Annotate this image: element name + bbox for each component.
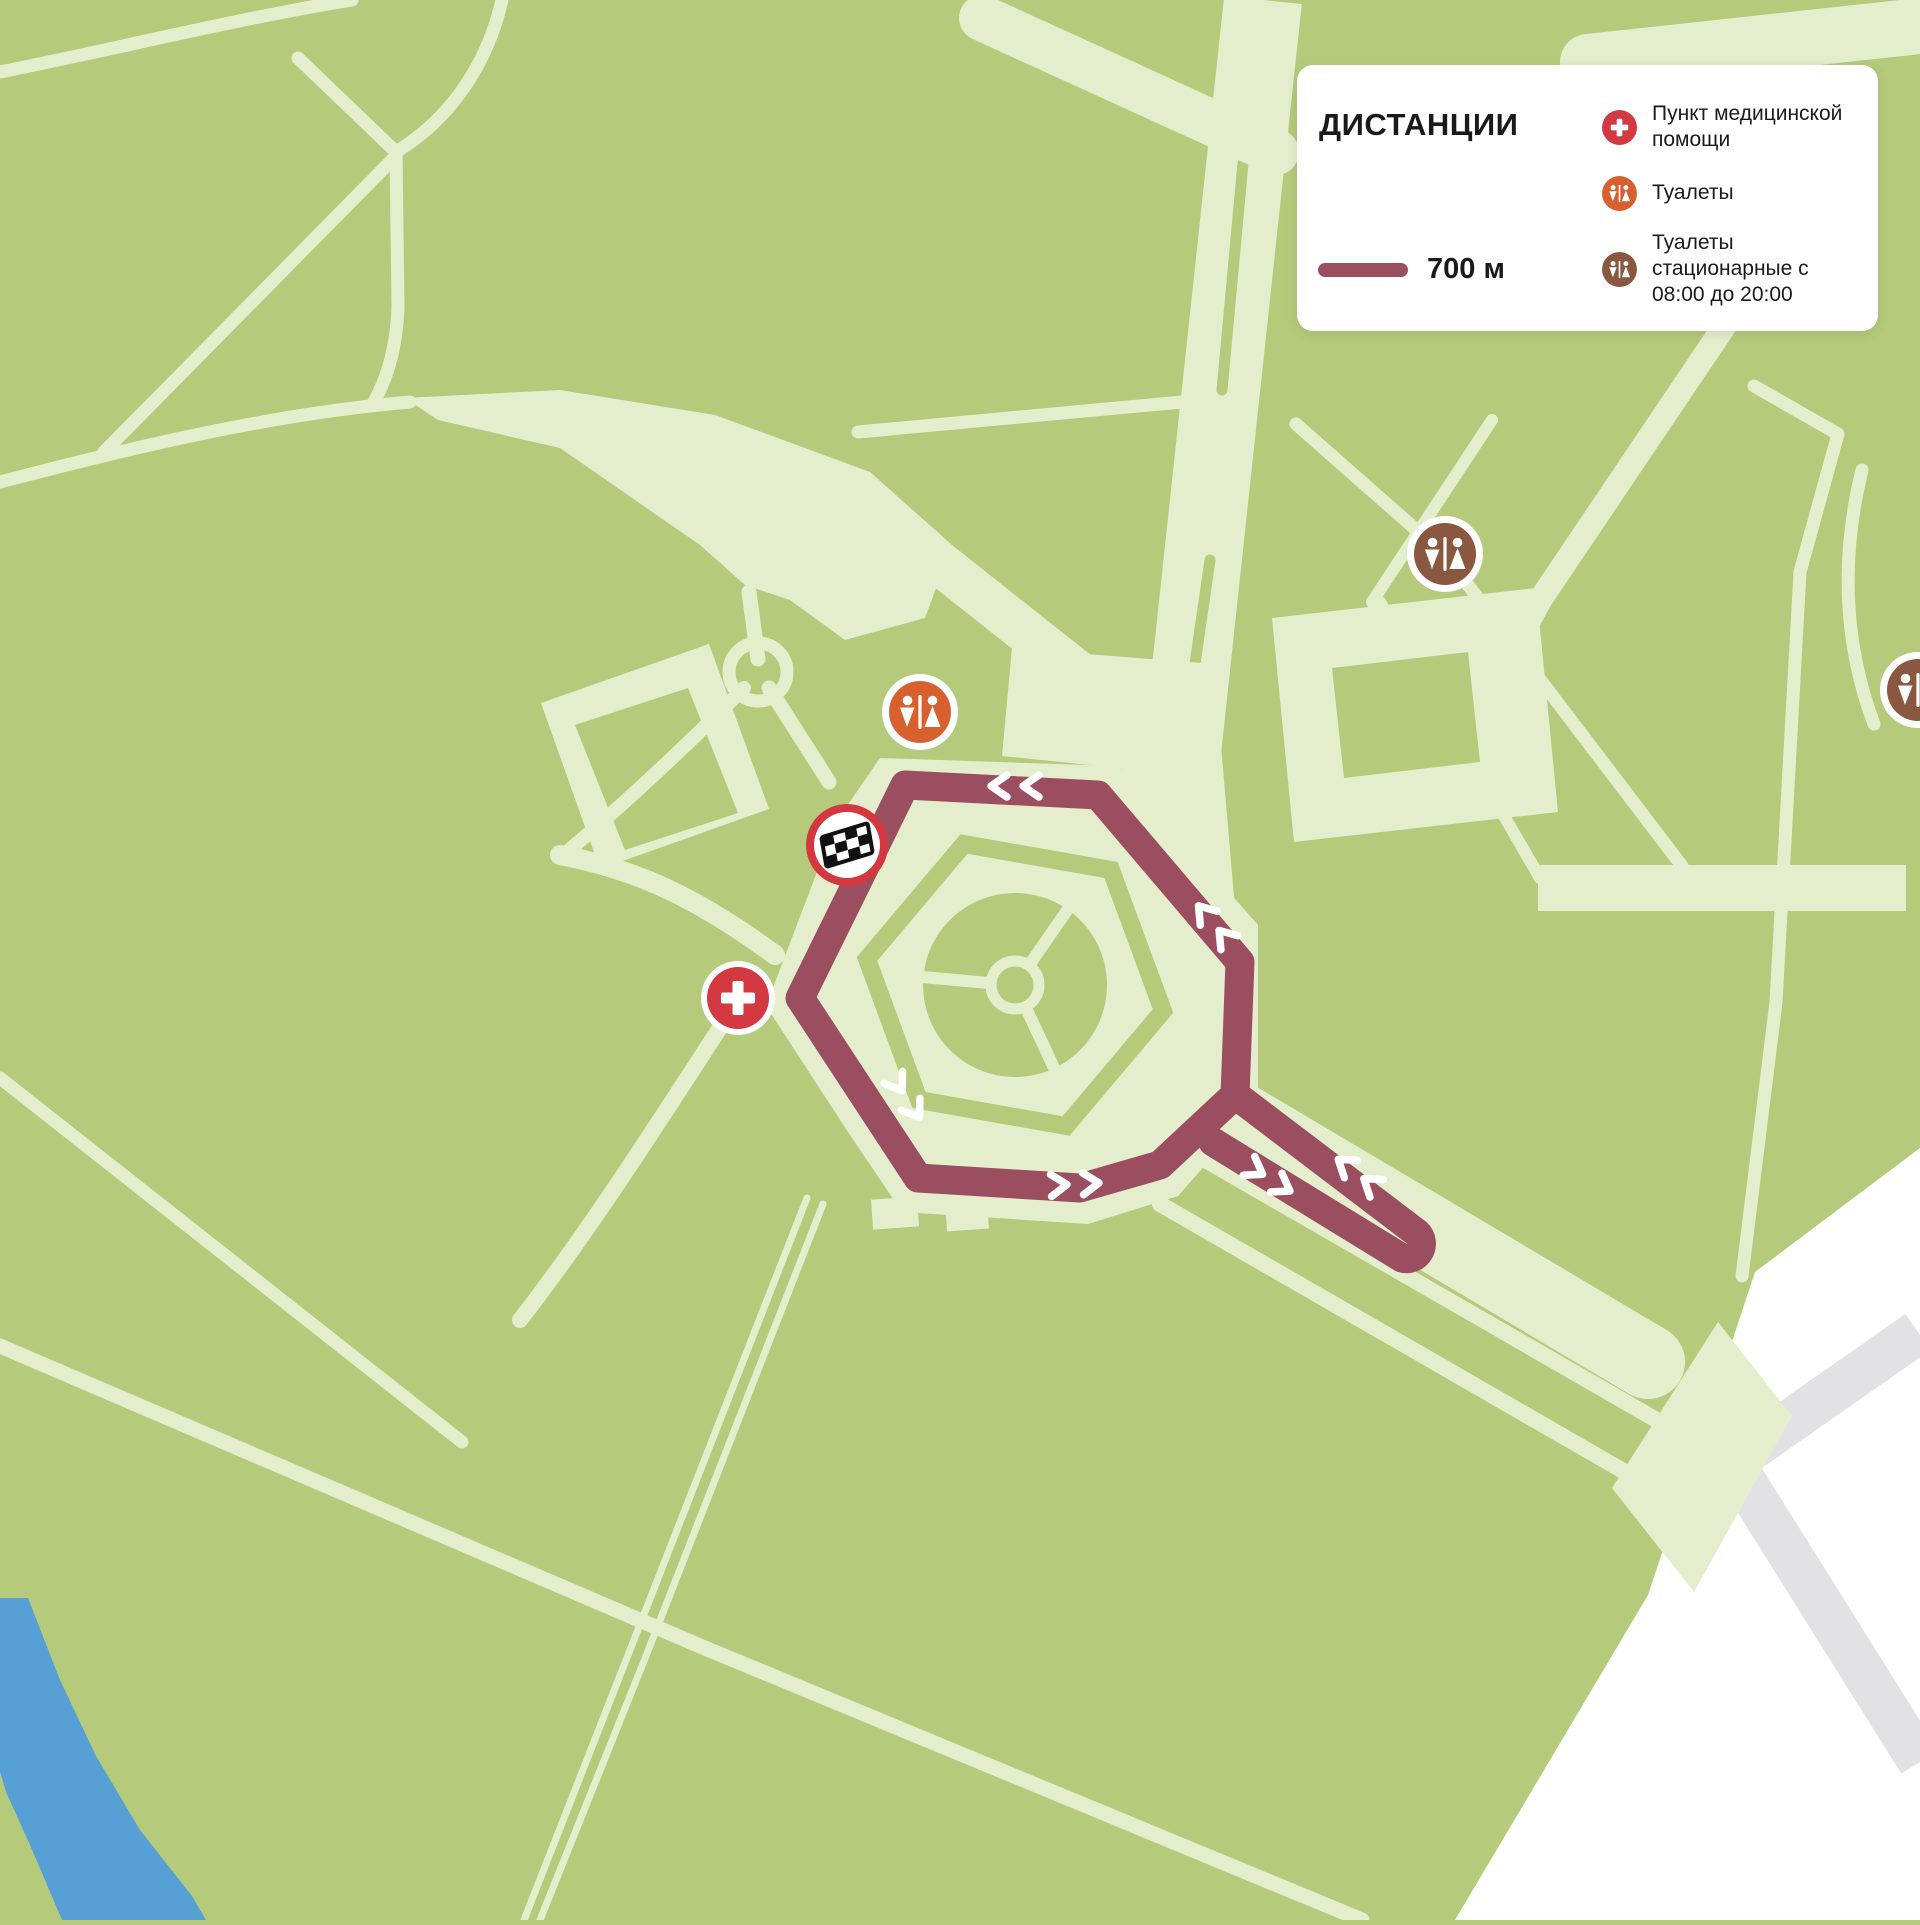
route-line-swatch xyxy=(1318,263,1408,277)
legend-item-label: Туалеты стационарные с 08:00 до 20:00 xyxy=(1652,230,1863,308)
toilets-icon xyxy=(900,695,941,729)
legend-item-toilets-stationary: Туалеты стационарные с 08:00 до 20:00 xyxy=(1601,241,1863,297)
medical-cross-icon xyxy=(1601,109,1638,146)
toilets-marker xyxy=(882,674,958,750)
toilets-icon xyxy=(1601,175,1638,212)
legend-item-toilets: Туалеты xyxy=(1601,171,1863,215)
legend-distance-row: 700 м xyxy=(1318,253,1505,286)
legend-title: ДИСТАНЦИИ xyxy=(1319,107,1518,143)
medical-point-marker xyxy=(701,961,775,1035)
legend-panel: ДИСТАНЦИИ 700 м Пункт медицинской помощи… xyxy=(1297,65,1878,331)
toilets-stationary-north-marker xyxy=(1407,516,1483,592)
toilets-stationary-icon xyxy=(1425,537,1466,571)
finish-flag-marker xyxy=(806,804,888,886)
legend-item-label: Пункт медицинской помощи xyxy=(1652,101,1863,153)
legend-item-label: Туалеты xyxy=(1652,180,1863,206)
legend-item-medical: Пункт медицинской помощи xyxy=(1601,99,1863,155)
toilets-stationary-icon xyxy=(1601,251,1638,288)
legend-distance-label: 700 м xyxy=(1427,253,1505,286)
